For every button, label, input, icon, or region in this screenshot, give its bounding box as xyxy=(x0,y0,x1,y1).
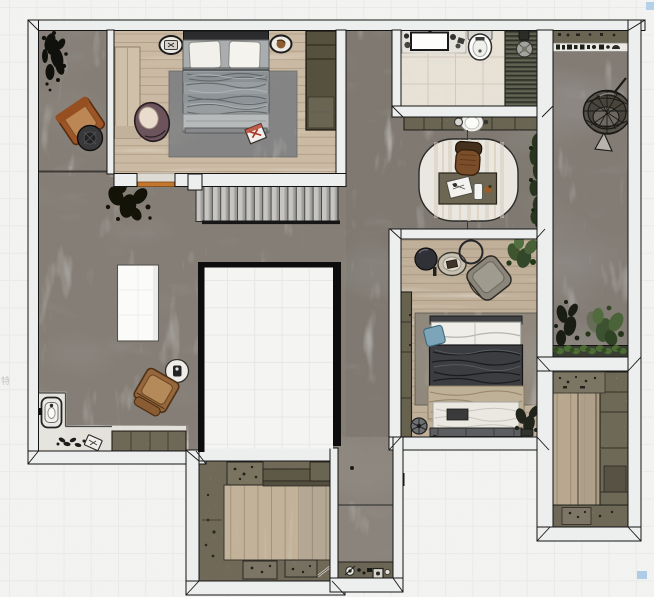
svg-text:特: 特 xyxy=(1,375,10,386)
